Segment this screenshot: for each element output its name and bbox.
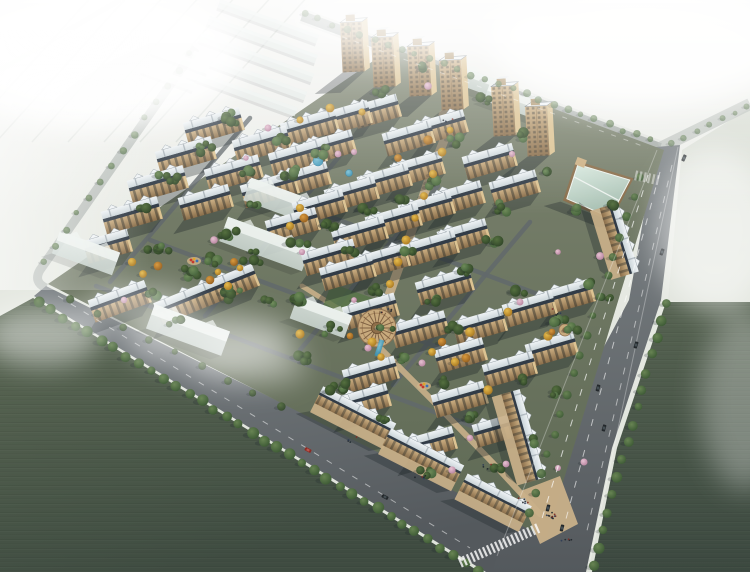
residential-masterplan-rendering <box>0 0 750 572</box>
aerial-rendering-root <box>0 0 750 572</box>
playground <box>417 382 431 390</box>
left-haze-overlay <box>0 30 150 290</box>
fog-patch <box>85 286 195 326</box>
playground <box>187 257 201 265</box>
fog-patch <box>188 346 308 386</box>
